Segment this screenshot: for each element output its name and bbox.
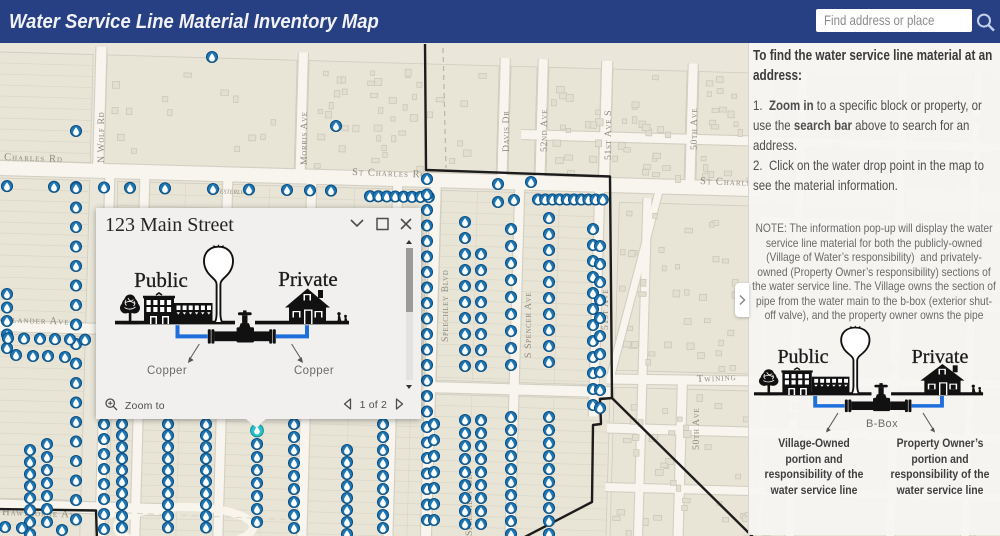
- svg-text:Public: Public: [777, 346, 828, 368]
- svg-text:Speechley Blvd: Speechley Blvd: [440, 270, 451, 342]
- svg-text:50th Ave: 50th Ave: [689, 108, 700, 150]
- svg-text:Private: Private: [912, 346, 969, 368]
- svg-text:N Wolf Rd: N Wolf Rd: [96, 112, 107, 163]
- svg-text:52nd Ave: 52nd Ave: [539, 109, 550, 152]
- svg-text:Copper: Copper: [294, 365, 334, 377]
- svg-text:50th Ave: 50th Ave: [691, 408, 702, 450]
- svg-text:Public: Public: [134, 268, 188, 292]
- svg-text:Twining: Twining: [697, 372, 737, 385]
- svg-text:51st Ave S: 51st Ave S: [603, 110, 614, 160]
- svg-text:Morris Ave: Morris Ave: [299, 111, 310, 165]
- svg-text:S Spencer Ave: S Spencer Ave: [523, 292, 534, 358]
- svg-text:Copper: Copper: [147, 365, 187, 377]
- svg-text:Private: Private: [278, 267, 337, 291]
- svg-text:Charles Rd: Charles Rd: [4, 152, 63, 165]
- svg-text:Davis Dr: Davis Dr: [501, 110, 512, 152]
- svg-text:B-Box: B-Box: [866, 418, 898, 430]
